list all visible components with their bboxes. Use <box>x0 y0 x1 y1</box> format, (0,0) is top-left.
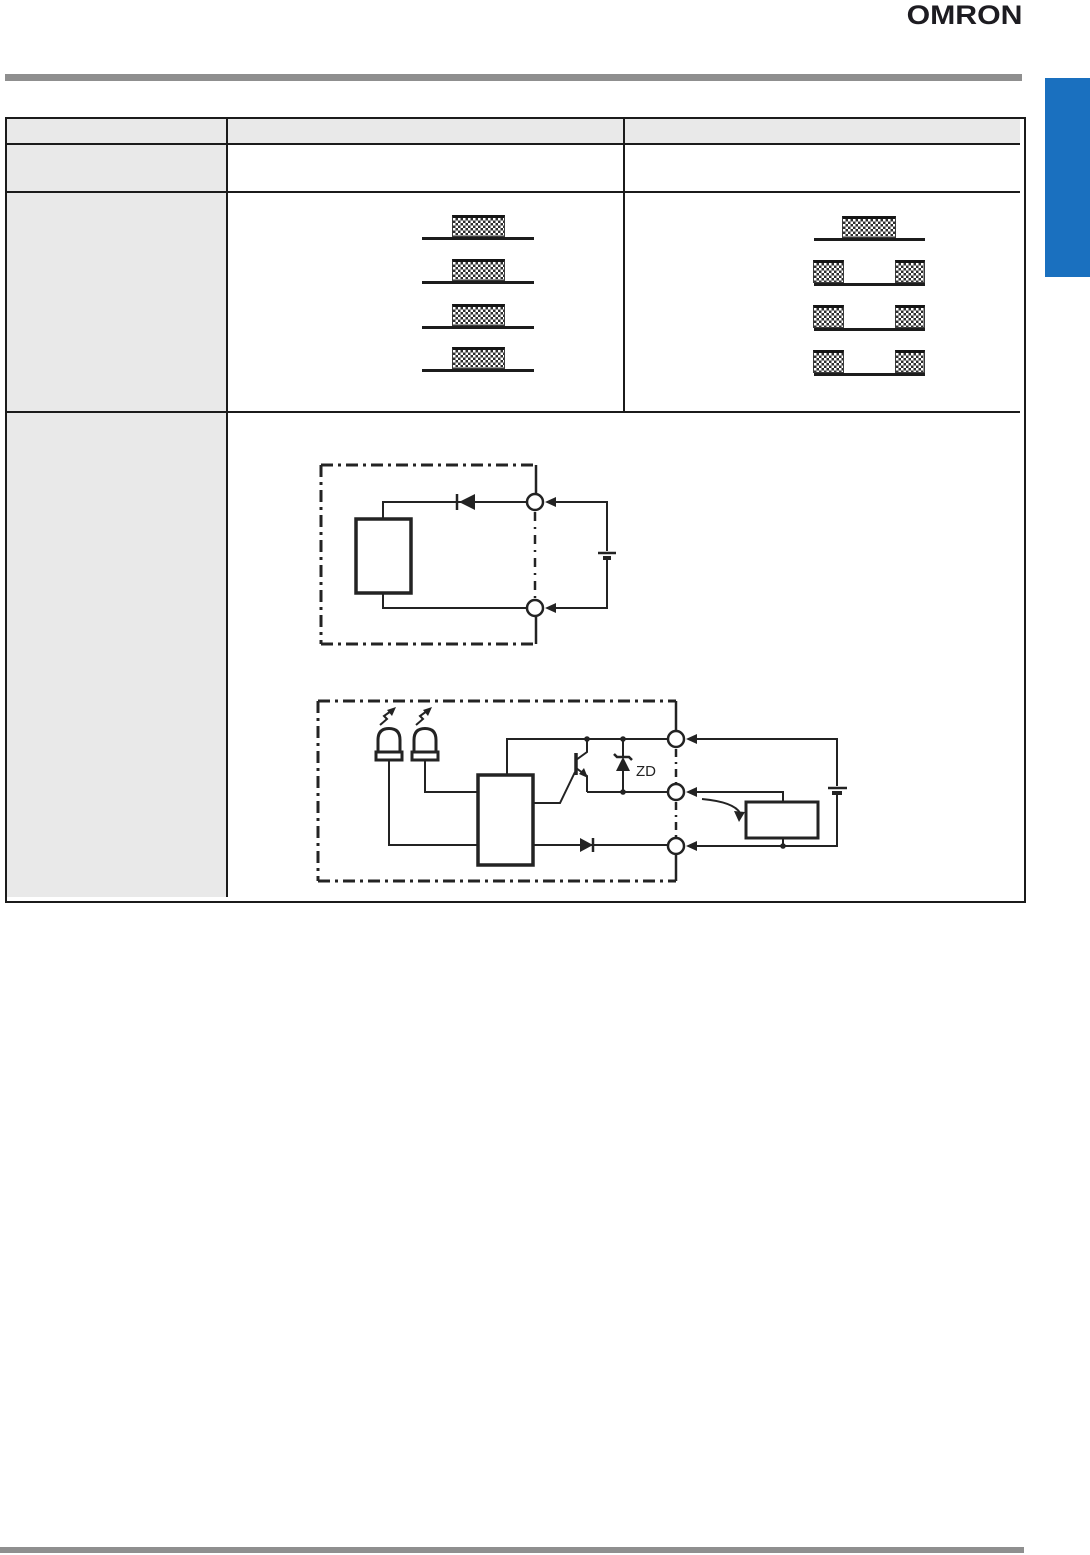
timing-diagram-right <box>625 193 1022 413</box>
diode-icon <box>457 494 475 510</box>
table-cell-row2-col2 <box>228 145 625 193</box>
table-header-cell-1 <box>7 119 228 145</box>
terminal-middle <box>668 784 684 800</box>
terminal-bottom <box>668 838 684 854</box>
npn-transistor-icon <box>533 739 588 803</box>
internal-block <box>356 519 411 593</box>
table-row-label-cell-3 <box>7 413 228 897</box>
arrow-left-icon <box>686 841 697 851</box>
diode-icon <box>580 838 593 852</box>
transistor-output-circuit: ZD <box>318 701 847 881</box>
signal-baseline <box>422 237 534 240</box>
light-emission-arrow-icon <box>416 707 432 725</box>
battery-icon <box>828 788 847 793</box>
top-rule-divider <box>5 74 1022 81</box>
relay-output-circuit <box>321 465 616 644</box>
indicator-led-icon <box>376 729 402 761</box>
signal-pulse <box>813 260 844 283</box>
signal-pulse <box>842 216 896 238</box>
battery-icon <box>598 553 616 558</box>
case-border <box>321 465 536 644</box>
signal-pulse <box>452 259 505 281</box>
signal-pulse <box>452 304 505 326</box>
table-cell-row2-col3 <box>625 145 1020 193</box>
junction-dot <box>620 789 626 795</box>
signal-baseline <box>422 369 534 372</box>
table-header-cell-2 <box>228 119 625 145</box>
indicator-led-icon <box>412 729 438 761</box>
signal-pulse <box>452 347 505 369</box>
datasheet-page: { "brand": { "logo_text": "OMRON" }, "th… <box>0 0 1090 1555</box>
signal-pulse <box>452 215 505 237</box>
signal-baseline <box>814 238 925 241</box>
zener-diode-icon <box>614 739 632 792</box>
arrow-left-icon <box>545 603 556 613</box>
arrow-left-icon <box>545 497 556 507</box>
signal-pulse <box>895 350 925 373</box>
terminal-top <box>668 731 684 747</box>
light-emission-arrow-icon <box>380 707 396 725</box>
terminal-top <box>527 494 543 510</box>
terminal-bottom <box>527 600 543 616</box>
arrow-left-icon <box>686 787 697 797</box>
table-row-label-cell-2 <box>7 193 228 413</box>
signal-pulse <box>813 305 844 328</box>
signal-baseline <box>422 326 534 329</box>
table-row-label-cell-1 <box>7 145 228 193</box>
timing-diagram-left <box>228 193 625 413</box>
signal-baseline <box>814 283 925 286</box>
section-side-tab <box>1045 78 1090 277</box>
signal-pulse <box>895 260 925 283</box>
signal-baseline <box>814 328 925 331</box>
output-circuit-diagrams: ZD <box>228 413 1022 899</box>
signal-baseline <box>422 281 534 284</box>
table-header-cell-3 <box>625 119 1020 145</box>
signal-pulse <box>895 305 925 328</box>
omron-logo: OMRON <box>906 0 1022 31</box>
signal-baseline <box>814 373 925 376</box>
load-block <box>746 802 818 838</box>
main-circuit-block <box>478 775 533 865</box>
current-flow-arrow-icon <box>702 799 745 822</box>
bottom-rule-divider <box>0 1547 1024 1553</box>
arrow-left-icon <box>686 734 697 744</box>
zener-label: ZD <box>636 763 656 780</box>
signal-pulse <box>813 350 844 373</box>
